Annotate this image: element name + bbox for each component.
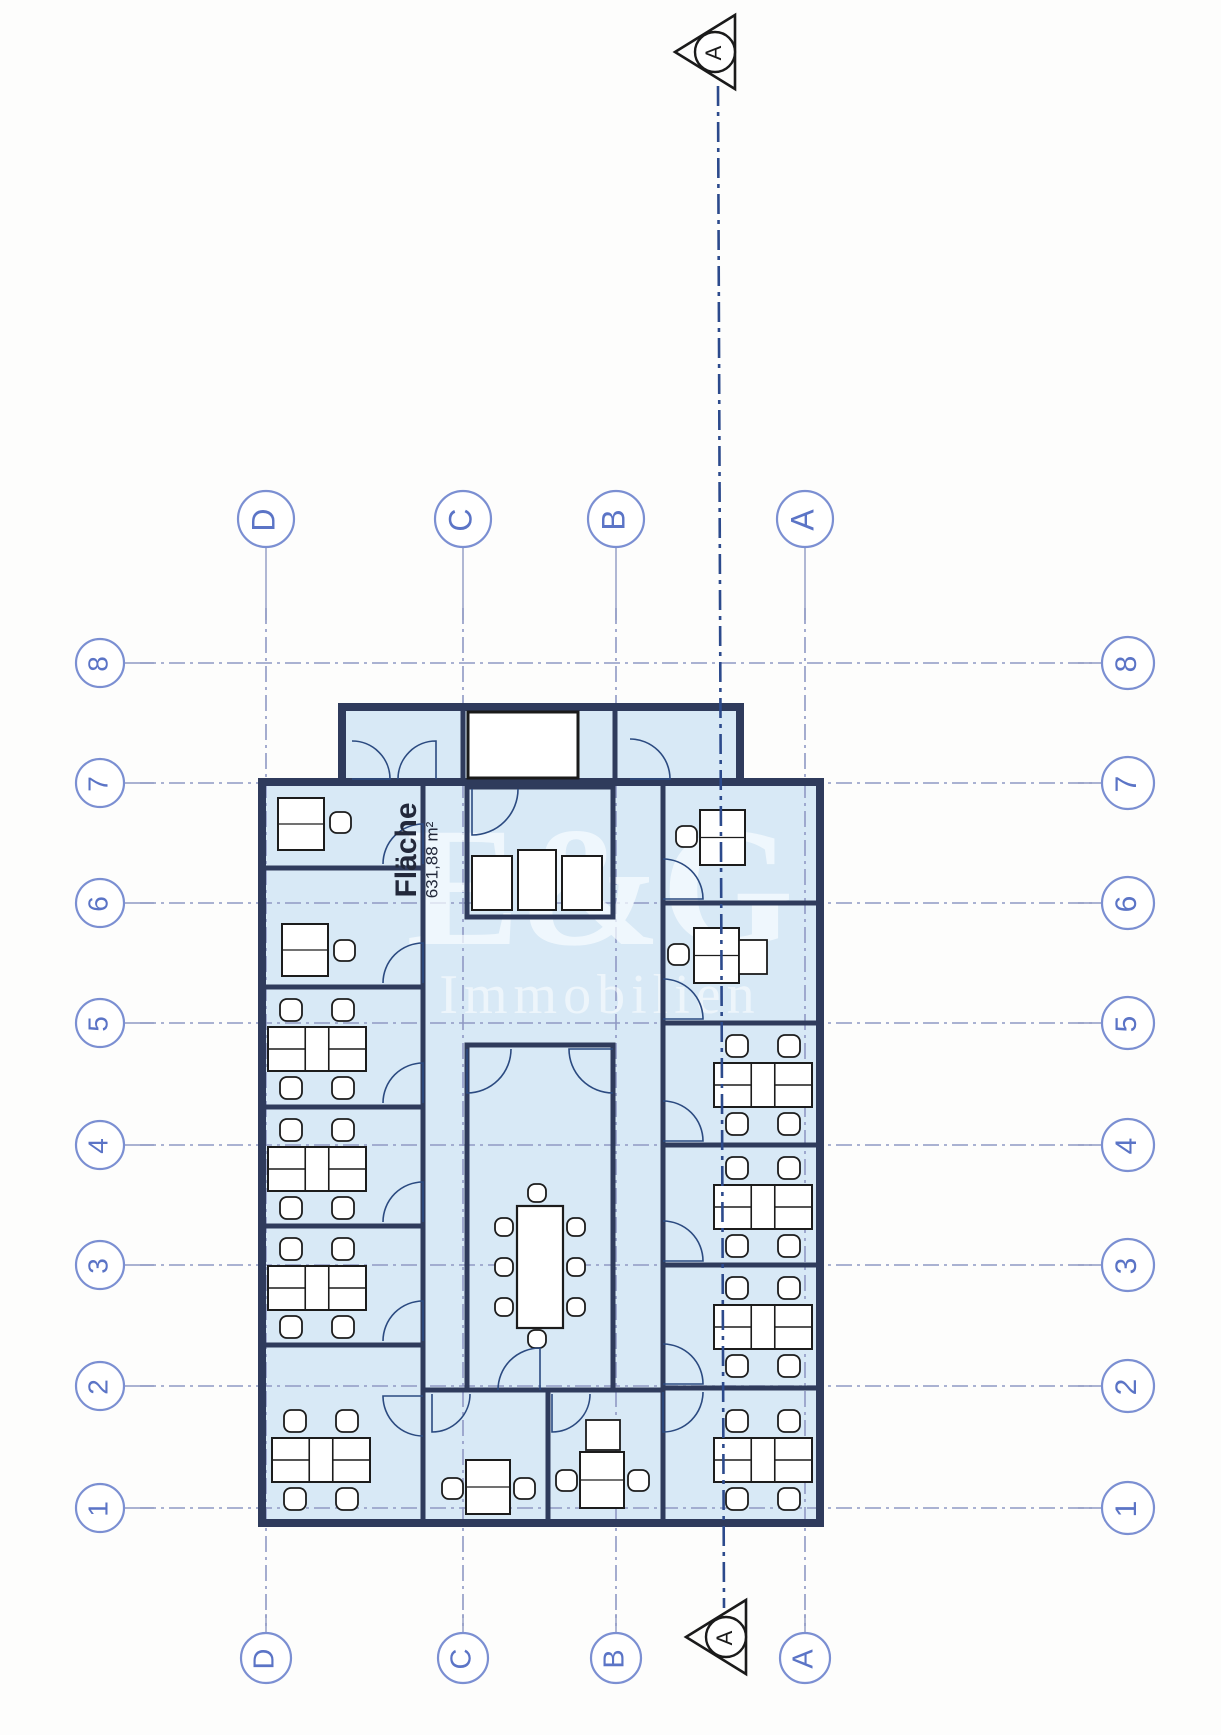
office-chair <box>778 1035 800 1057</box>
section-marker-bottom: A <box>686 1600 746 1674</box>
grid-bubble-B-top: B <box>588 491 644 547</box>
office-chair <box>567 1218 585 1236</box>
grid-bubble-B-top-label: B <box>595 509 631 530</box>
grid-bubble-C-top-label: C <box>442 508 478 531</box>
office-chair <box>778 1410 800 1432</box>
office-chair <box>726 1235 748 1257</box>
office-chair <box>284 1488 306 1510</box>
office-chair <box>280 999 302 1021</box>
desk-return <box>586 1420 620 1450</box>
grid-bubble-3-right: 3 <box>1102 1239 1154 1291</box>
office-chair <box>778 1157 800 1179</box>
grid-bubble-6-left-label: 6 <box>82 896 113 912</box>
office-chair <box>495 1258 513 1276</box>
grid-bubble-4-left-label: 4 <box>82 1138 113 1154</box>
office-chair <box>280 1119 302 1141</box>
grid-bubble-C-top: C <box>435 491 491 547</box>
office-chair <box>567 1258 585 1276</box>
office-chair <box>284 1410 306 1432</box>
grid-bubble-A-top-label: A <box>784 509 820 531</box>
office-chair <box>726 1035 748 1057</box>
grid-bubble-B-bottom: B <box>591 1633 641 1683</box>
office-chair <box>280 1197 302 1219</box>
grid-bubble-7-right-label: 7 <box>1110 776 1143 793</box>
office-chair <box>332 1316 354 1338</box>
grid-bubble-B-bottom-label: B <box>599 1649 631 1668</box>
grid-bubble-8-right: 8 <box>1102 637 1154 689</box>
office-chair <box>726 1410 748 1432</box>
office-chair <box>778 1277 800 1299</box>
grid-bubble-D-top-label: D <box>245 508 281 531</box>
office-chair <box>332 999 354 1021</box>
grid-bubble-6-right: 6 <box>1102 877 1154 929</box>
office-chair <box>495 1218 513 1236</box>
office-chair <box>495 1298 513 1316</box>
office-chair <box>336 1410 358 1432</box>
office-chair <box>726 1157 748 1179</box>
area-label-value: 631,88 m² <box>422 821 441 898</box>
grid-bubble-8-right-label: 8 <box>1110 656 1143 673</box>
conference-table <box>517 1206 563 1328</box>
office-chair <box>778 1235 800 1257</box>
desk-return <box>739 940 767 974</box>
office-chair <box>336 1488 358 1510</box>
grid-bubble-4-right: 4 <box>1102 1119 1154 1171</box>
office-chair <box>726 1355 748 1377</box>
grid-bubble-7-left: 7 <box>76 759 124 807</box>
grid-bubble-1-right: 1 <box>1102 1482 1154 1534</box>
grid-bubble-3-left: 3 <box>76 1241 124 1289</box>
office-chair <box>628 1470 649 1491</box>
office-chair <box>726 1488 748 1510</box>
office-chair <box>726 1113 748 1135</box>
grid-bubble-3-right-label: 3 <box>1110 1258 1143 1275</box>
office-chair <box>778 1113 800 1135</box>
office-chair <box>332 1119 354 1141</box>
grid-bubble-D-bottom: D <box>241 1633 291 1683</box>
grid-bubble-A-top: A <box>777 491 833 547</box>
office-chair <box>514 1478 535 1499</box>
grid-bubble-1-left: 1 <box>76 1484 124 1532</box>
office-chair <box>528 1330 546 1348</box>
section-marker-letter: A <box>701 45 726 60</box>
grid-bubble-A-bottom-label: A <box>788 1649 820 1669</box>
grid-bubble-2-right-label: 2 <box>1110 1379 1143 1396</box>
office-chair <box>556 1470 577 1491</box>
office-chair <box>528 1184 546 1202</box>
grid-bubble-5-right: 5 <box>1102 997 1154 1049</box>
grid-bubble-6-right-label: 6 <box>1110 896 1143 913</box>
office-chair <box>778 1355 800 1377</box>
grid-bubble-7-right: 7 <box>1102 757 1154 809</box>
grid-bubble-8-left: 8 <box>76 639 124 687</box>
sanitary-fixture <box>518 850 556 910</box>
grid-bubble-D-top: D <box>238 491 294 547</box>
office-chair <box>332 1077 354 1099</box>
scanned-floor-plan-page: E&GImmobilienFläche631,88 m²AADDCCBBAA88… <box>0 0 1221 1735</box>
grid-bubble-2-left-label: 2 <box>82 1379 113 1395</box>
office-chair <box>280 1077 302 1099</box>
office-chair <box>330 812 351 833</box>
grid-bubble-1-right-label: 1 <box>1110 1501 1143 1518</box>
section-marker-top: A <box>675 15 735 89</box>
grid-bubble-8-left-label: 8 <box>82 656 113 672</box>
grid-bubble-2-right: 2 <box>1102 1360 1154 1412</box>
sanitary-fixture <box>472 856 512 910</box>
grid-bubble-5-right-label: 5 <box>1110 1016 1143 1033</box>
grid-bubble-C-bottom-label: C <box>446 1649 478 1670</box>
grid-bubble-5-left-label: 5 <box>82 1016 113 1032</box>
section-marker-letter: A <box>712 1630 737 1645</box>
grid-bubble-4-right-label: 4 <box>1110 1138 1143 1155</box>
stair-core <box>468 712 578 778</box>
office-chair <box>676 826 697 847</box>
grid-bubble-A-bottom: A <box>780 1633 830 1683</box>
grid-bubble-D-bottom-label: D <box>249 1649 281 1670</box>
office-chair <box>280 1316 302 1338</box>
office-chair <box>442 1478 463 1499</box>
office-chair <box>668 944 689 965</box>
area-label-title: Fläche <box>390 802 423 897</box>
grid-bubble-2-left: 2 <box>76 1362 124 1410</box>
office-chair <box>726 1277 748 1299</box>
sanitary-fixture <box>562 856 602 910</box>
grid-bubble-5-left: 5 <box>76 999 124 1047</box>
office-chair <box>332 1238 354 1260</box>
office-chair <box>778 1488 800 1510</box>
grid-bubble-C-bottom: C <box>438 1633 488 1683</box>
floor-plan-drawing: E&GImmobilienFläche631,88 m²AADDCCBBAA88… <box>0 0 1221 1735</box>
office-chair <box>332 1197 354 1219</box>
grid-bubble-3-left-label: 3 <box>82 1258 113 1274</box>
grid-bubble-4-left: 4 <box>76 1121 124 1169</box>
office-chair <box>334 940 355 961</box>
office-chair <box>567 1298 585 1316</box>
grid-bubble-6-left: 6 <box>76 879 124 927</box>
grid-bubble-7-left-label: 7 <box>82 776 113 792</box>
grid-bubble-1-left-label: 1 <box>82 1501 113 1517</box>
office-chair <box>280 1238 302 1260</box>
